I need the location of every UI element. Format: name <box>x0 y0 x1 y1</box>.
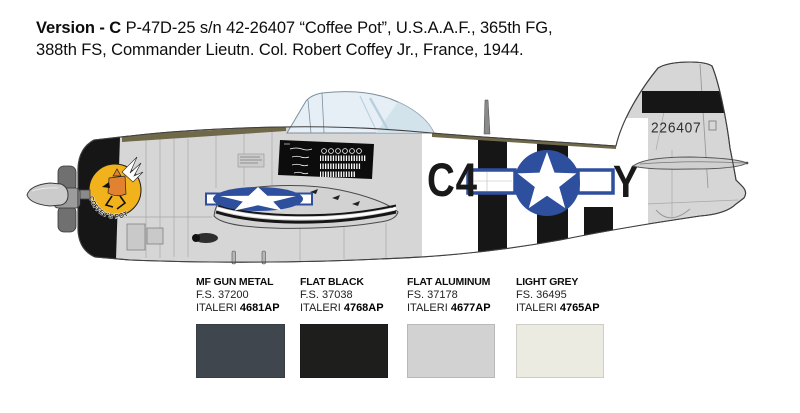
paint-name: FLAT BLACK <box>300 276 400 289</box>
fuselage-code-left: C4 <box>427 154 478 206</box>
paint-brand-code: ITALERI 4765AP <box>516 302 616 315</box>
mission-scoreboard-panel <box>278 140 374 179</box>
paint-reference-table: MF GUN METAL F.S. 37200 ITALERI 4681AP F… <box>0 276 800 396</box>
paint-swatch <box>516 324 604 378</box>
tail-band <box>642 91 754 113</box>
propeller-blade-lower <box>58 206 76 232</box>
paint-fs-code: F.S. 37200 <box>196 289 296 302</box>
paint-swatch <box>196 324 285 378</box>
paint-name: LIGHT GREY <box>516 276 616 289</box>
antenna-mast <box>484 100 490 134</box>
fuselage-code-right: Y <box>613 156 639 207</box>
paint-entry-flat-aluminum: FLAT ALUMINUM FS. 37178 ITALERI 4677AP <box>407 276 507 378</box>
paint-fs-code: F.S. 37038 <box>300 289 400 302</box>
paint-entry-mf-gun-metal: MF GUN METAL F.S. 37200 ITALERI 4681AP <box>196 276 296 378</box>
paint-entry-flat-black: FLAT BLACK F.S. 37038 ITALERI 4768AP <box>300 276 400 378</box>
tail-serial: 226407 <box>651 119 701 135</box>
paint-brand-code: ITALERI 4677AP <box>407 302 507 315</box>
paint-swatch <box>407 324 495 378</box>
paint-name: MF GUN METAL <box>196 276 296 289</box>
paint-fs-code: FS. 36495 <box>516 289 616 302</box>
spinner <box>27 183 68 206</box>
paint-swatch <box>300 324 388 378</box>
paint-name: FLAT ALUMINUM <box>407 276 507 289</box>
stencil-block <box>238 154 264 167</box>
paint-brand-code: ITALERI 4681AP <box>196 302 296 315</box>
invasion-stripe-black-3 <box>584 207 613 267</box>
paint-fs-code: FS. 37178 <box>407 289 507 302</box>
paint-entry-light-grey: LIGHT GREY FS. 36495 ITALERI 4765AP <box>516 276 616 378</box>
gun-barrel <box>192 233 218 243</box>
paint-brand-code: ITALERI 4768AP <box>300 302 400 315</box>
